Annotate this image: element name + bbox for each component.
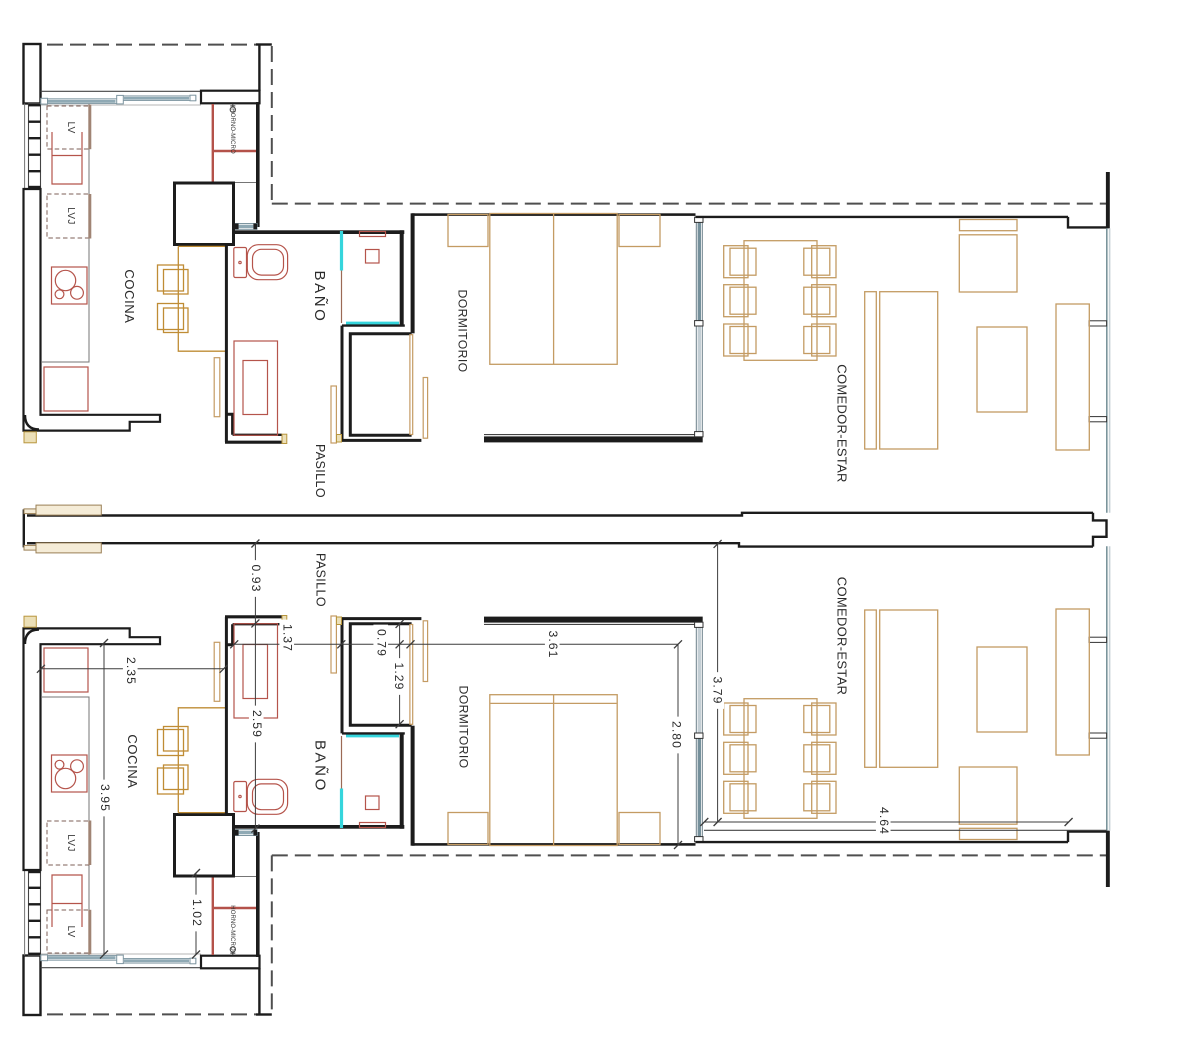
- svg-text:3.61: 3.61: [546, 630, 560, 658]
- svg-text:BAÑO: BAÑO: [311, 740, 328, 793]
- svg-text:PASILLO: PASILLO: [313, 444, 327, 498]
- svg-text:2.35: 2.35: [124, 657, 138, 685]
- svg-text:1.02: 1.02: [190, 899, 204, 927]
- svg-text:LVJ: LVJ: [65, 834, 76, 851]
- svg-text:LV: LV: [65, 925, 76, 937]
- svg-text:DORMITORIO: DORMITORIO: [456, 686, 470, 769]
- svg-text:DORMITORIO: DORMITORIO: [455, 290, 469, 373]
- svg-text:LVJ: LVJ: [65, 207, 76, 224]
- svg-text:3.95: 3.95: [98, 784, 112, 812]
- svg-text:2.59: 2.59: [250, 710, 264, 738]
- svg-text:COCINA: COCINA: [122, 269, 137, 323]
- svg-text:COMEDOR-ESTAR: COMEDOR-ESTAR: [835, 364, 850, 483]
- svg-text:COMEDOR-ESTAR: COMEDOR-ESTAR: [835, 577, 850, 696]
- svg-text:3.79: 3.79: [710, 676, 724, 704]
- svg-text:1.37: 1.37: [280, 624, 294, 652]
- svg-text:0.79: 0.79: [374, 629, 388, 657]
- svg-text:LV: LV: [65, 121, 76, 133]
- svg-text:HORNO-MICRO: HORNO-MICRO: [229, 108, 235, 154]
- svg-text:4.64: 4.64: [877, 807, 891, 835]
- svg-text:COCINA: COCINA: [125, 734, 140, 788]
- svg-text:2.80: 2.80: [669, 721, 683, 749]
- svg-text:BAÑO: BAÑO: [311, 271, 328, 324]
- svg-text:1.29: 1.29: [392, 662, 406, 690]
- svg-text:PASILLO: PASILLO: [314, 553, 328, 607]
- svg-text:HORNO-MICRO: HORNO-MICRO: [229, 905, 235, 951]
- svg-text:0.93: 0.93: [249, 564, 263, 592]
